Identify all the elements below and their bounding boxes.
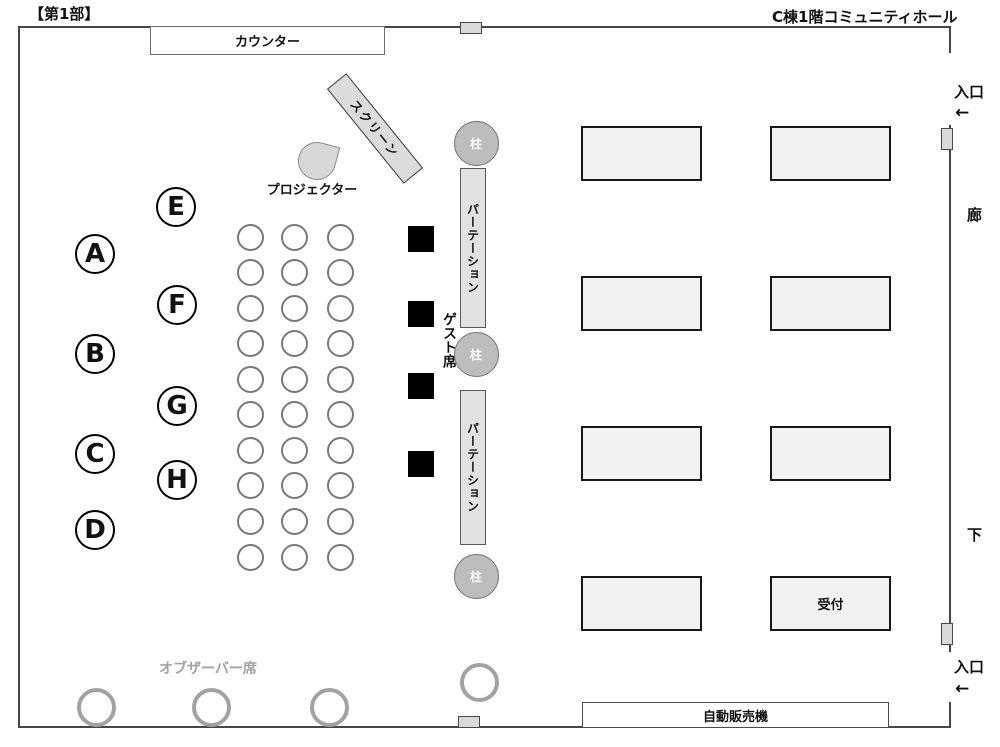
observer-seats-label: オブザーバー席: [159, 658, 257, 678]
entrance-arrow-bottom-icon: ←: [955, 681, 969, 698]
wall-right-middle: [949, 125, 951, 652]
guest-seat-square: [408, 451, 434, 477]
vending-machine-label: 自動販売機: [703, 706, 768, 725]
corridor-label-top-char: 廊: [967, 204, 982, 225]
chair-circle: [237, 508, 264, 535]
chair-circle: [281, 295, 308, 322]
chair-circle: [237, 472, 264, 499]
chair-circle: [327, 437, 354, 464]
observer-seat-circle: [460, 663, 499, 702]
seat-letter-badge-H: H: [157, 460, 197, 500]
table: [581, 276, 702, 331]
chair-circle: [327, 544, 354, 571]
chair-circle: [281, 401, 308, 428]
counter: カウンター: [150, 26, 385, 55]
table: [581, 576, 702, 631]
seat-letter-badge-A: A: [75, 234, 115, 274]
pillar-label: 柱: [470, 135, 482, 152]
screen-label: スクリーン: [347, 96, 404, 161]
table: [770, 426, 891, 481]
seat-letter-badge-B: B: [75, 334, 115, 374]
chair-circle: [327, 259, 354, 286]
door-marker-bottom-wall: [458, 716, 480, 728]
chair-circle: [237, 259, 264, 286]
seat-letter-badge-D: D: [75, 510, 115, 550]
entrance-label-top: 入口: [954, 81, 984, 102]
guest-seat-square: [408, 301, 434, 327]
chair-circle: [327, 330, 354, 357]
pillar: 柱: [454, 121, 499, 166]
chair-circle: [237, 401, 264, 428]
chair-circle: [281, 508, 308, 535]
table: [581, 126, 702, 181]
chair-circle: [237, 224, 264, 251]
table: [581, 426, 702, 481]
pillar-label: 柱: [470, 346, 482, 363]
chair-circle: [237, 544, 264, 571]
chair-circle: [281, 224, 308, 251]
chair-circle: [281, 366, 308, 393]
screen: スクリーン: [327, 73, 423, 184]
partition-label: パーテーション: [465, 422, 482, 513]
wall-right-lower: [949, 702, 951, 728]
observer-seat-circle: [310, 688, 349, 727]
chair-circle: [327, 295, 354, 322]
partition-label: パーテーション: [465, 203, 482, 294]
pillar: 柱: [454, 332, 499, 377]
chair-circle: [237, 295, 264, 322]
table: [770, 126, 891, 181]
chair-circle: [327, 224, 354, 251]
guest-seat-square: [408, 373, 434, 399]
reception-table: 受付: [770, 576, 891, 631]
entrance-label-bottom: 入口: [954, 656, 984, 677]
seat-letter-badge-E: E: [156, 187, 196, 227]
door-marker-right-lower: [941, 623, 953, 645]
wall-right-upper: [949, 26, 951, 53]
hall-title: C棟1階コミュニティホール: [772, 6, 958, 27]
guest-seat-square: [408, 226, 434, 252]
chair-circle: [281, 437, 308, 464]
reception-label: 受付: [817, 594, 843, 613]
pillar-label: 柱: [470, 568, 482, 585]
chair-circle: [327, 472, 354, 499]
pillar: 柱: [454, 554, 499, 599]
chair-circle: [237, 366, 264, 393]
chair-circle: [237, 330, 264, 357]
chair-circle: [327, 401, 354, 428]
chair-circle: [281, 330, 308, 357]
projector-icon: [294, 138, 341, 185]
table: [770, 276, 891, 331]
floor-plan-canvas: 【第1部】 C棟1階コミュニティホール カウンター スクリーン プロジェクター …: [0, 0, 1000, 747]
observer-seat-circle: [192, 688, 231, 727]
chair-circle: [281, 544, 308, 571]
chair-circle: [327, 508, 354, 535]
vending-machine: 自動販売機: [582, 702, 889, 728]
corridor-label-bottom-char: 下: [967, 524, 982, 545]
entrance-arrow-top-icon: ←: [955, 105, 969, 122]
chair-circle: [327, 366, 354, 393]
wall-left: [18, 26, 20, 728]
seat-letter-badge-G: G: [157, 386, 197, 426]
part-title: 【第1部】: [29, 3, 99, 24]
chair-circle: [237, 437, 264, 464]
partition: パーテーション: [460, 390, 486, 545]
seat-letter-badge-C: C: [75, 434, 115, 474]
partition: パーテーション: [460, 168, 486, 328]
observer-seat-circle: [77, 688, 116, 727]
counter-label: カウンター: [235, 31, 300, 50]
door-marker-top-wall: [460, 22, 482, 34]
chair-circle: [281, 472, 308, 499]
door-marker-right-upper: [941, 128, 953, 150]
projector-label: プロジェクター: [266, 179, 358, 198]
seat-letter-badge-F: F: [157, 285, 197, 325]
chair-circle: [281, 259, 308, 286]
